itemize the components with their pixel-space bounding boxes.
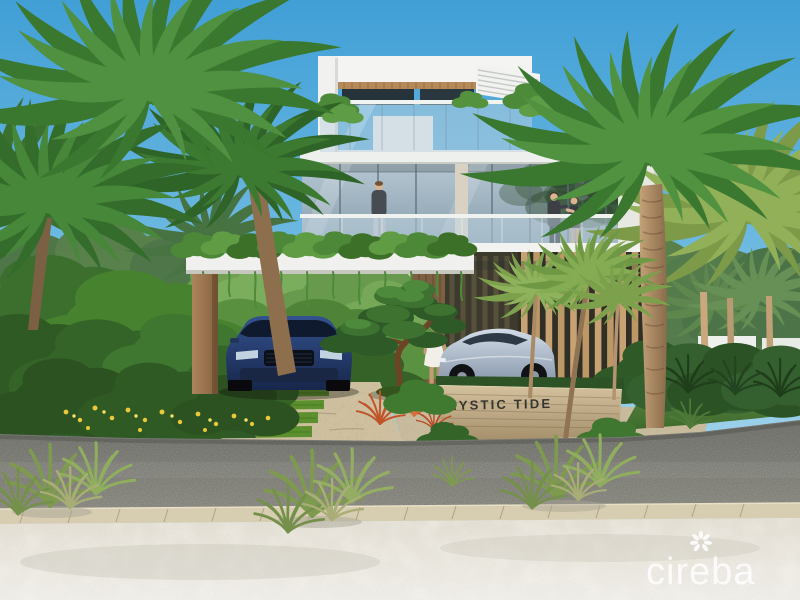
sign-text: MYSTIC TIDE [446,396,553,413]
beach-sand [0,512,800,600]
rendering-canvas: MYSTIC TIDE [0,0,800,600]
villa-rendering: MYSTIC TIDE [0,0,800,600]
